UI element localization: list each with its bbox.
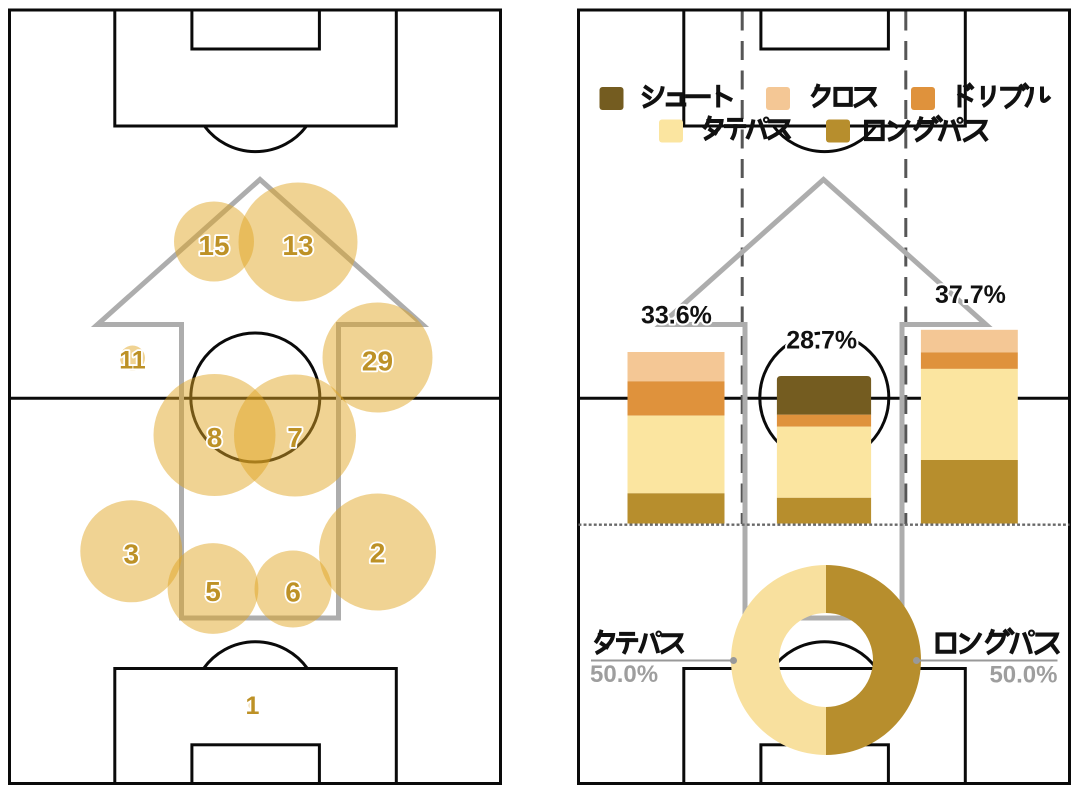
svg-text:8: 8 [207,422,223,453]
svg-text:29: 29 [362,346,393,377]
svg-text:28.7%: 28.7% [786,327,857,355]
svg-text:15: 15 [198,230,229,261]
svg-text:5: 5 [205,576,221,607]
svg-text:3: 3 [124,539,140,570]
svg-text:6: 6 [285,577,301,608]
svg-text:1: 1 [246,692,260,720]
svg-text:50.0%: 50.0% [590,661,658,688]
svg-text:7: 7 [287,422,303,453]
svg-text:50.0%: 50.0% [989,662,1057,689]
svg-text:33.6%: 33.6% [641,302,712,330]
svg-text:13: 13 [282,230,313,261]
svg-text:11: 11 [119,347,146,375]
svg-text:37.7%: 37.7% [935,281,1006,309]
svg-text:2: 2 [370,538,386,569]
